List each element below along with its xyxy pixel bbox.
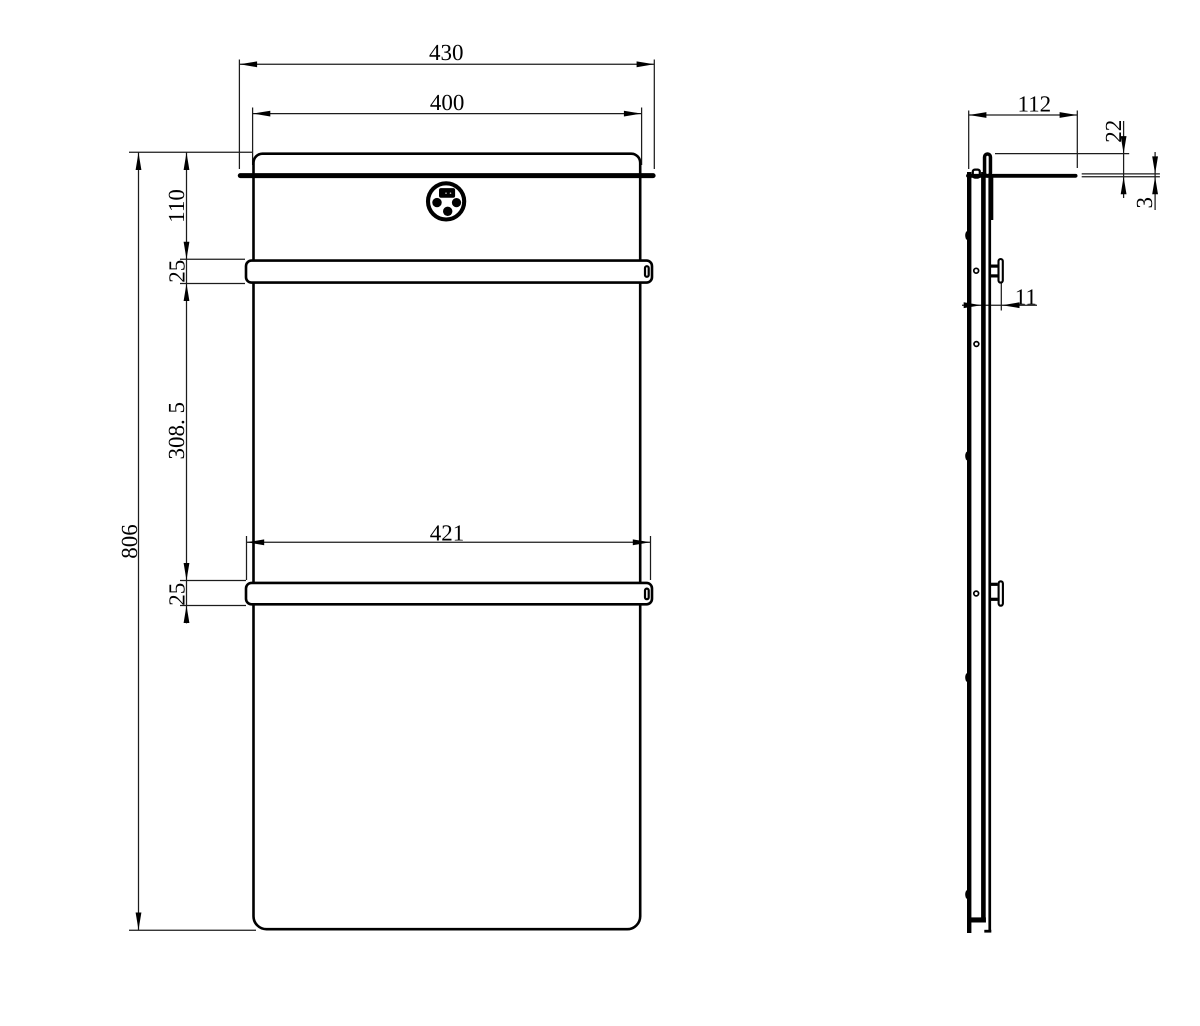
svg-text:112: 112 bbox=[1017, 92, 1051, 117]
svg-text:25: 25 bbox=[165, 260, 190, 283]
svg-text:400: 400 bbox=[430, 90, 465, 115]
svg-text:25: 25 bbox=[165, 583, 190, 606]
svg-text:430: 430 bbox=[429, 40, 464, 65]
svg-text:3: 3 bbox=[1132, 197, 1157, 209]
svg-text:110: 110 bbox=[164, 189, 189, 223]
svg-text:308. 5: 308. 5 bbox=[164, 402, 189, 460]
